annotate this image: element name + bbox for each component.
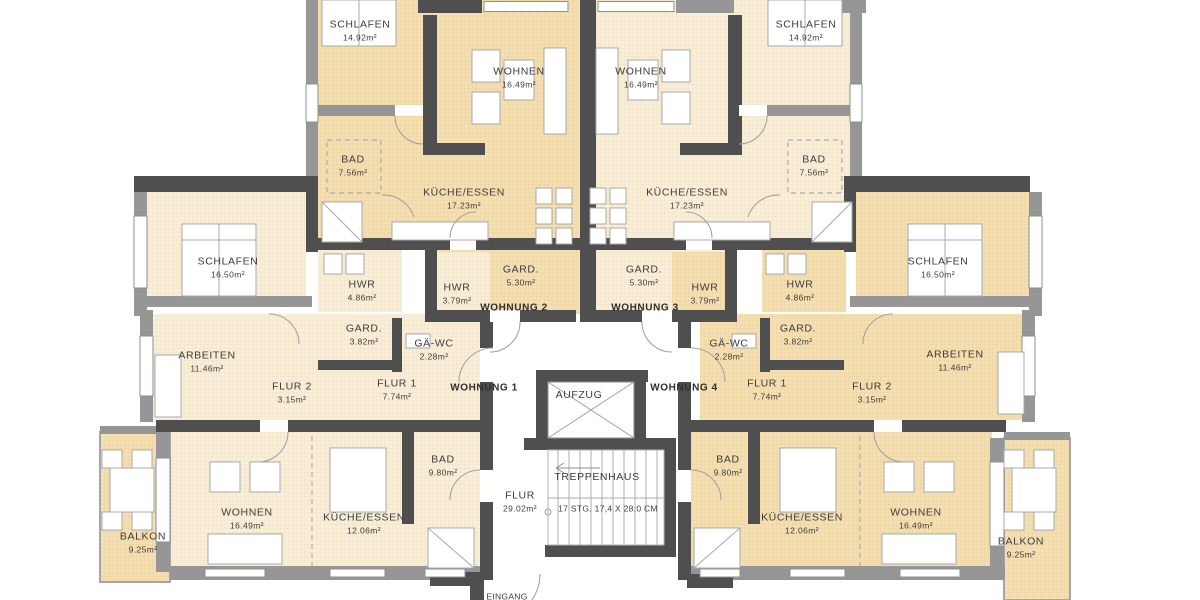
desk-left [155, 355, 181, 417]
floor-plan-drawing [0, 0, 1200, 600]
kitchen-counter-top-left [392, 222, 488, 240]
kitchen-island-bottom-left [330, 448, 386, 512]
balcony-table-right [1012, 468, 1056, 512]
floor-plan-page: SCHLAFEN14.92m²WOHNEN16.49m²WOHNEN16.49m… [0, 0, 1200, 600]
stairs [545, 450, 664, 545]
room-area-hwr-cr [672, 252, 730, 312]
room-area-gard-cl [492, 252, 566, 304]
sofa-bottom-right [882, 534, 956, 564]
room-area-gard-l [318, 318, 396, 362]
room-area-hwr-cl [432, 252, 490, 312]
room-area-gard-r [767, 318, 845, 362]
kitchen-island-bottom-right [780, 448, 836, 512]
balcony-table-left [110, 468, 154, 512]
elevator [548, 382, 634, 438]
sofa-bottom-left [208, 534, 282, 564]
room-area-gard-cr [596, 252, 670, 304]
desk-right [998, 352, 1024, 414]
kitchen-counter-top-right [674, 222, 770, 240]
